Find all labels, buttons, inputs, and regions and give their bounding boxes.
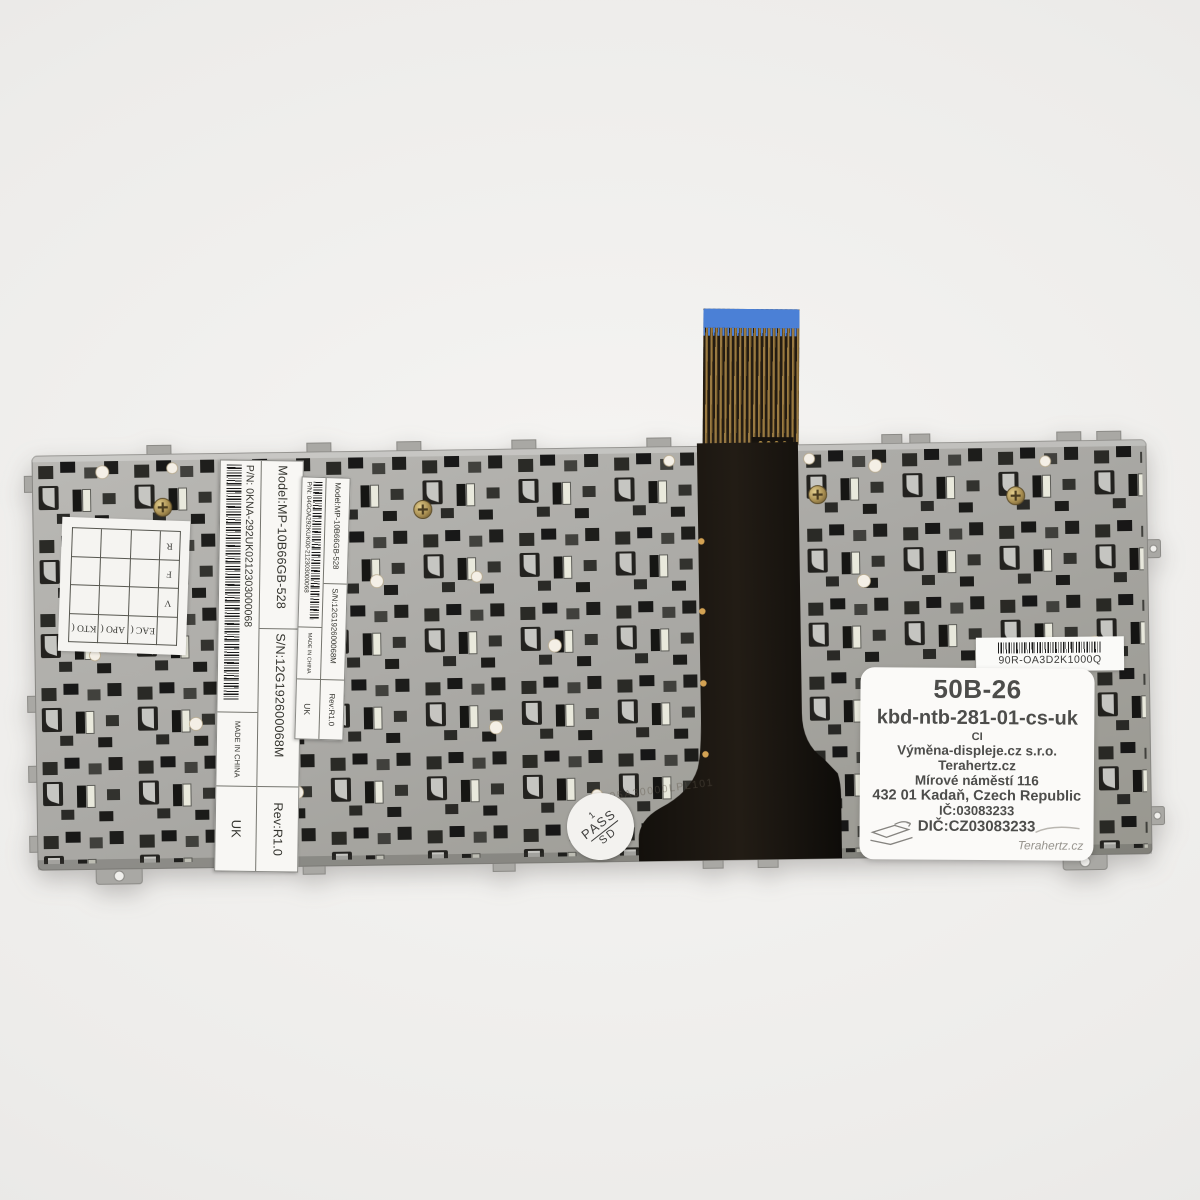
signature-text: Terahertz.cz [1018,839,1084,853]
serial-number: S/N:12G192600068M [321,584,347,681]
phillips-screw [154,498,172,516]
qc-mark-apo: APO ( [101,624,126,635]
country-code: UK [215,786,257,871]
barcode-code: 90R-OA3D2K1000Q [998,653,1101,666]
part-number: P/N: 0KNA-292UK0212303000068 [217,460,261,713]
part-number: P/N: 04GOA292KUK00-212303000068 [298,477,325,628]
qc-letter-f: F [166,569,172,579]
seller-stock-code: 50B-26 [860,674,1094,705]
phillips-screw [809,486,827,504]
ribbon-blue-stiffener [703,309,799,329]
qc-grid-sticker: R F V KTO ( APO ( EAC ( [58,517,191,655]
barcode [223,465,241,701]
qc-letter-r: R [167,540,174,550]
phillips-screw [414,500,432,518]
phillips-screw [1007,487,1025,505]
model-number: Model:MP-10B66GB-528 [324,478,350,585]
seller-street: Mírové náměstí 116 [860,772,1094,789]
seller-sku: kbd-ntb-281-01-cs-uk [860,706,1094,730]
qc-mark-kto: KTO ( [71,623,96,634]
manufacturer-label-large: Model:MP-10B66GB-528 S/N:12G192600068M R… [214,459,304,872]
revision: Rev:R1.0 [319,680,344,740]
barcode [998,641,1102,653]
laptop-icon [867,817,915,849]
seller-label: 50B-26 kbd-ntb-281-01-cs-uk CI Výměna-di… [859,667,1094,861]
seller-company: Výměna-displeje.cz s.r.o. [860,742,1094,759]
serial-number: S/N:12G192600068M [258,629,301,788]
seller-brand: Terahertz.cz [860,757,1094,774]
qc-mark-eac: EAC ( [130,625,155,636]
made-in: MADE IN CHINA [216,712,258,787]
manufacturer-label-small: Model:MP-10B66GB-528 S/N:12G192600068M R… [294,476,350,740]
model-number: Model:MP-10B66GB-528 [260,461,303,630]
made-in: MADE IN CHINA [297,627,321,680]
signature-swoosh [1032,824,1084,834]
flex-ribbon-cable [702,309,799,458]
terahertz-signature: Terahertz.cz [1018,821,1084,853]
part-number-text: P/N: 0KNA-292UK0212303000068 [241,465,255,627]
revision: Rev:R1.0 [257,787,299,872]
country-code: UK [295,679,320,739]
asus-barcode-label: 90R-OA3D2K1000Q [976,636,1124,672]
product-photo: 05A30000LPL101 Model:MP-10B66GB-528 S/N:… [0,0,1200,1200]
qc-letter-v: V [164,598,171,608]
